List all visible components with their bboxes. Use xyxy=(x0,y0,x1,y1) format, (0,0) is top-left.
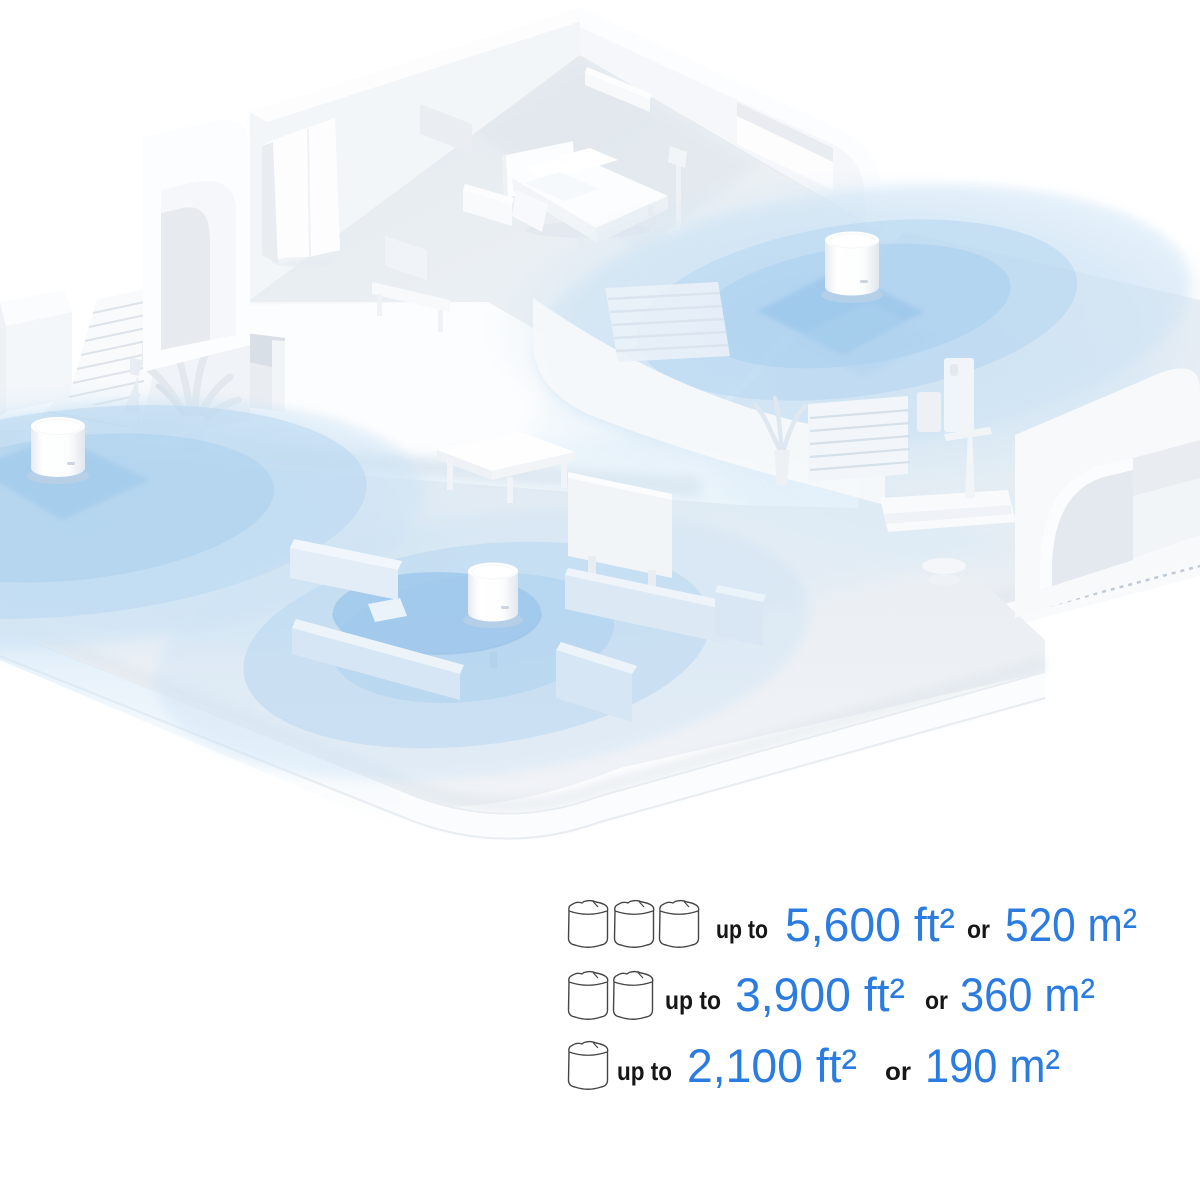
svg-text:3,900 ft²: 3,900 ft² xyxy=(735,968,905,1021)
svg-text:or: or xyxy=(967,916,990,944)
svg-text:up to: up to xyxy=(617,1056,672,1086)
svg-text:360 m²: 360 m² xyxy=(960,968,1095,1021)
svg-text:190 m²: 190 m² xyxy=(925,1039,1060,1092)
svg-text:5,600 ft²: 5,600 ft² xyxy=(785,898,955,951)
svg-text:2,100 ft²: 2,100 ft² xyxy=(687,1039,857,1092)
svg-text:up to: up to xyxy=(665,985,721,1015)
svg-text:520 m²: 520 m² xyxy=(1005,898,1137,951)
svg-text:or: or xyxy=(885,1058,911,1086)
svg-text:or: or xyxy=(925,987,948,1015)
svg-text:up to: up to xyxy=(716,914,768,944)
